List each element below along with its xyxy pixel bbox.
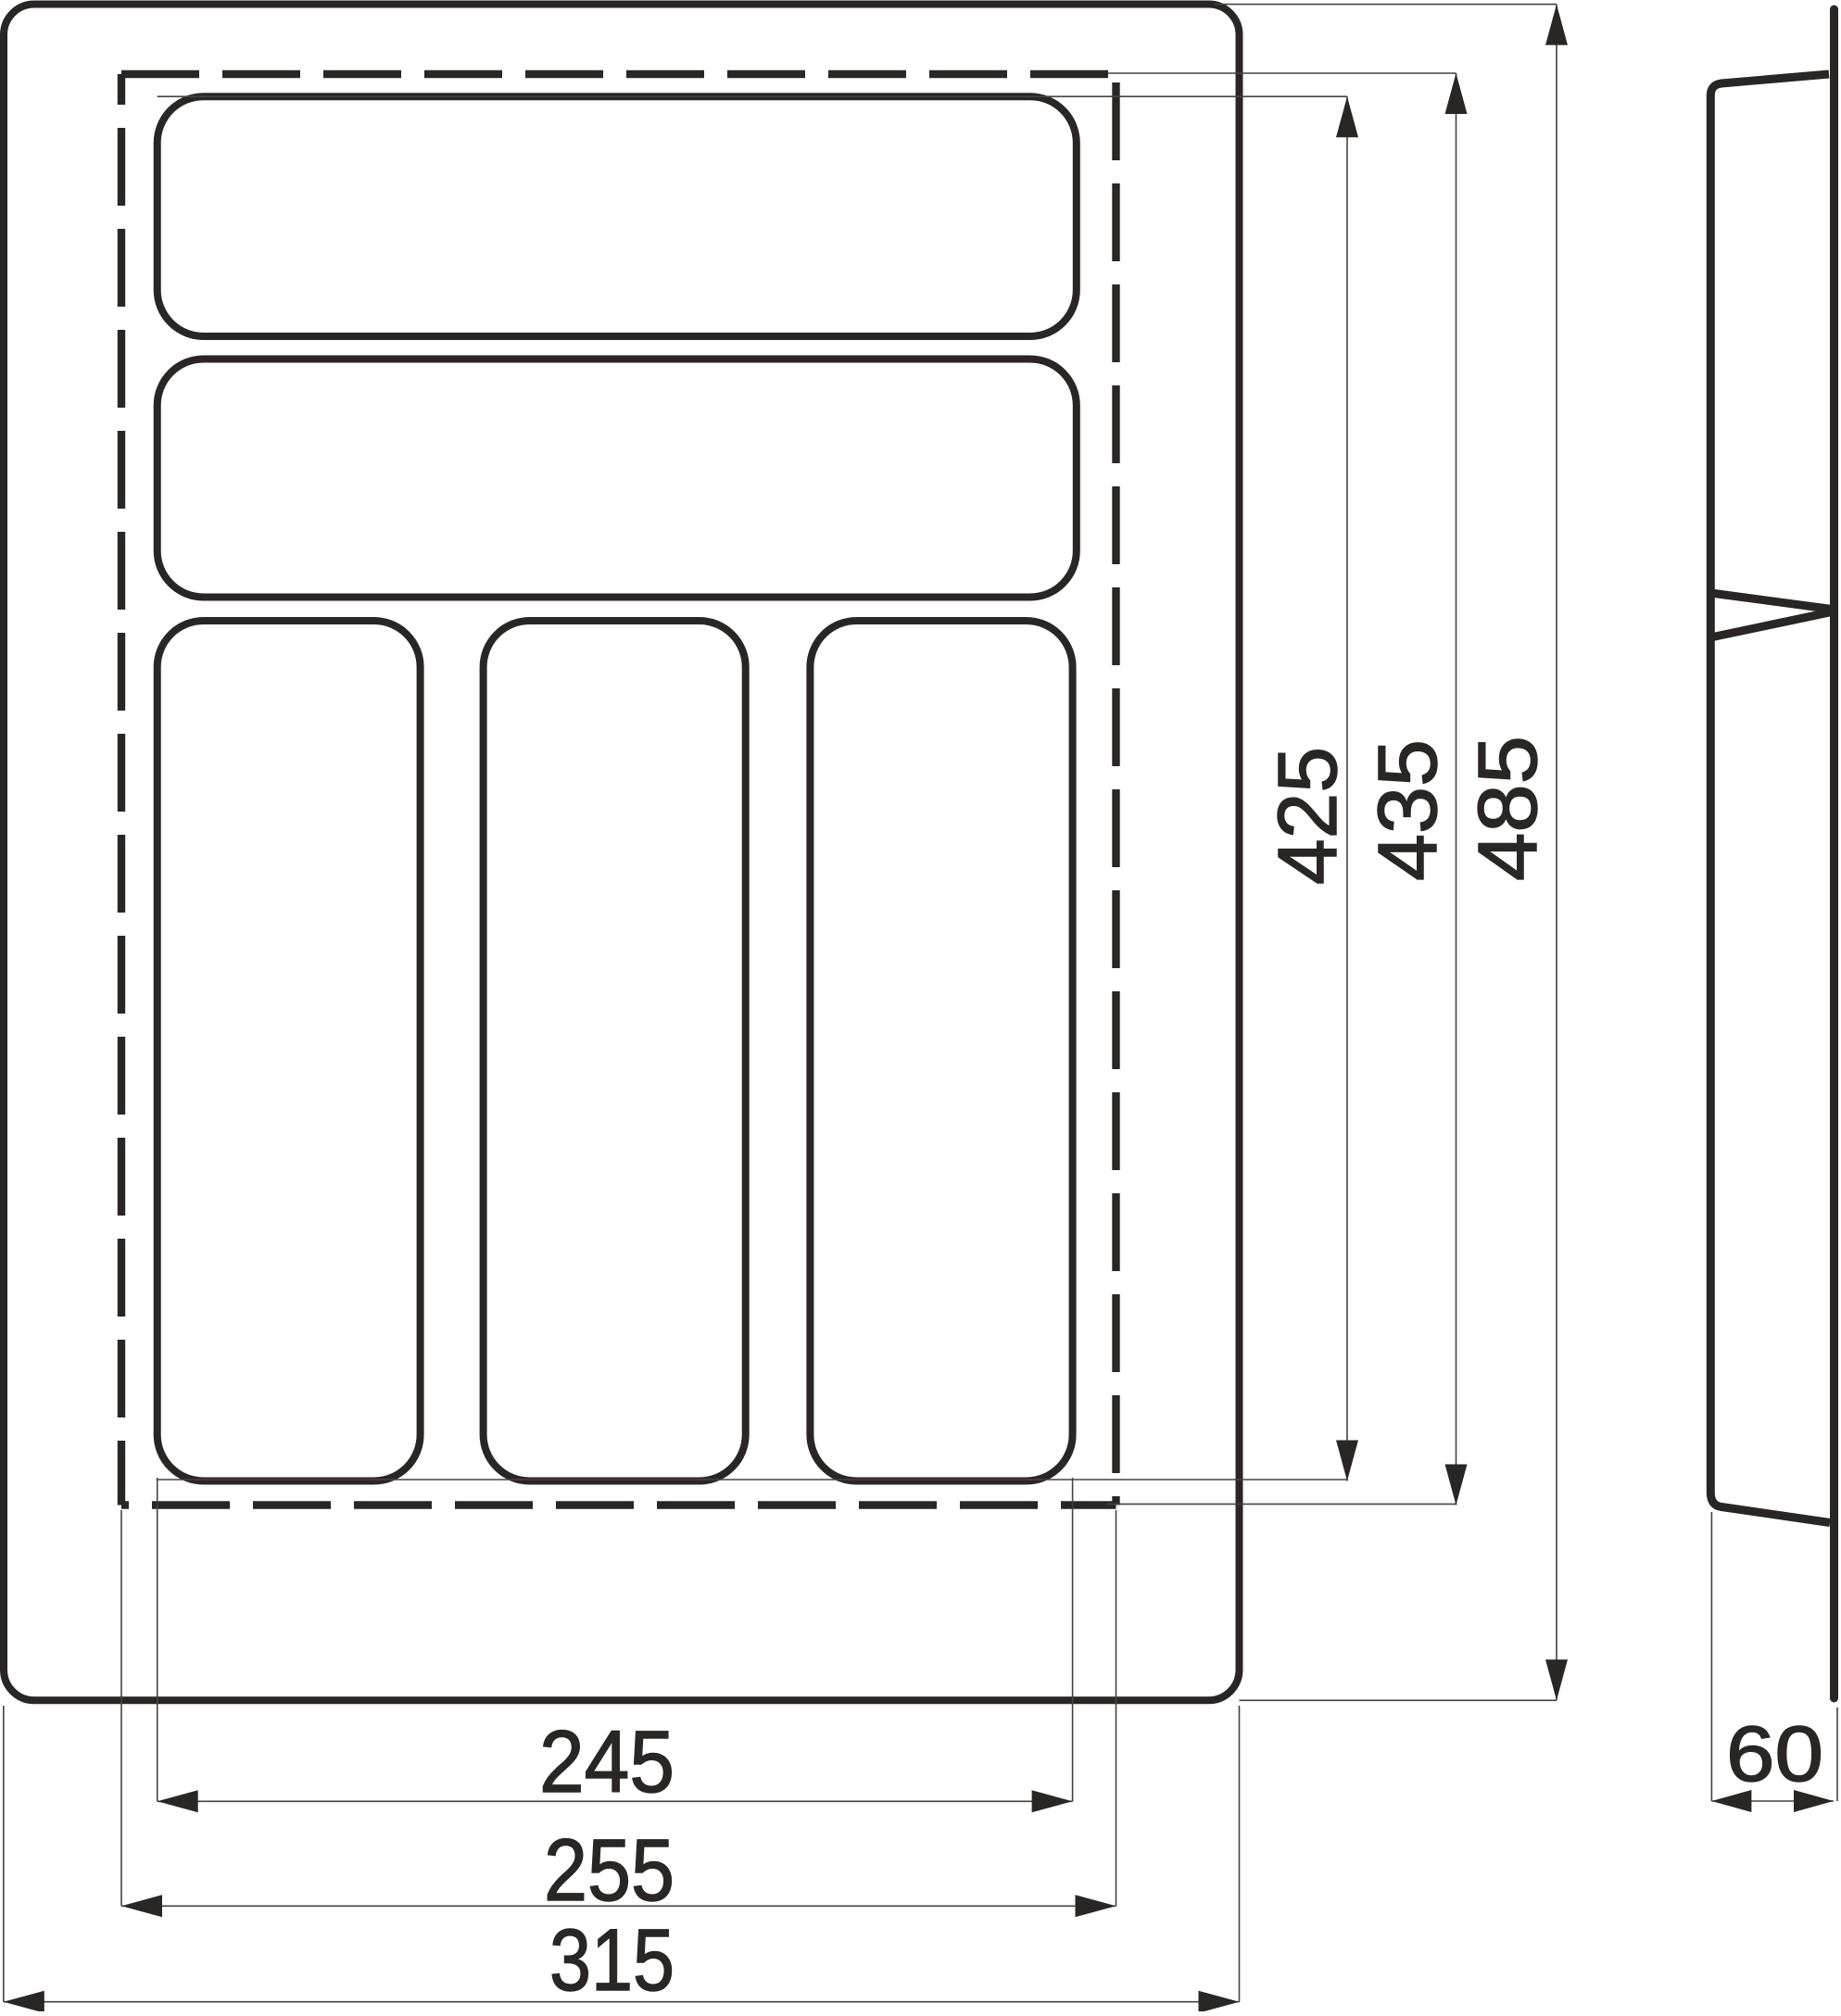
svg-text:255: 255 (544, 1821, 675, 1920)
svg-text:315: 315 (549, 1911, 675, 2010)
svg-text:425: 425 (1262, 747, 1355, 885)
svg-text:435: 435 (1362, 739, 1455, 881)
svg-text:245: 245 (539, 1713, 675, 1811)
svg-text:60: 60 (1726, 1710, 1823, 1797)
svg-text:485: 485 (1462, 736, 1555, 881)
